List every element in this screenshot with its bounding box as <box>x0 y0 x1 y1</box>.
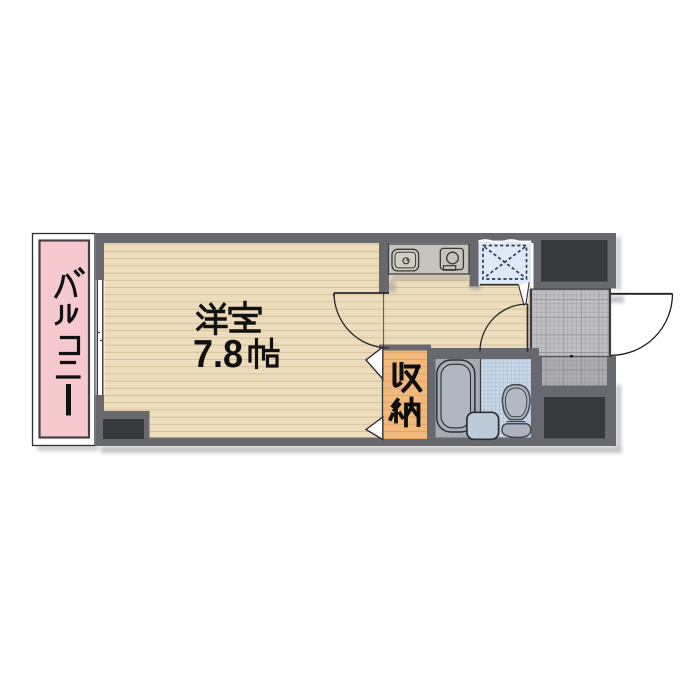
svg-text:7.8: 7.8 <box>193 333 243 376</box>
